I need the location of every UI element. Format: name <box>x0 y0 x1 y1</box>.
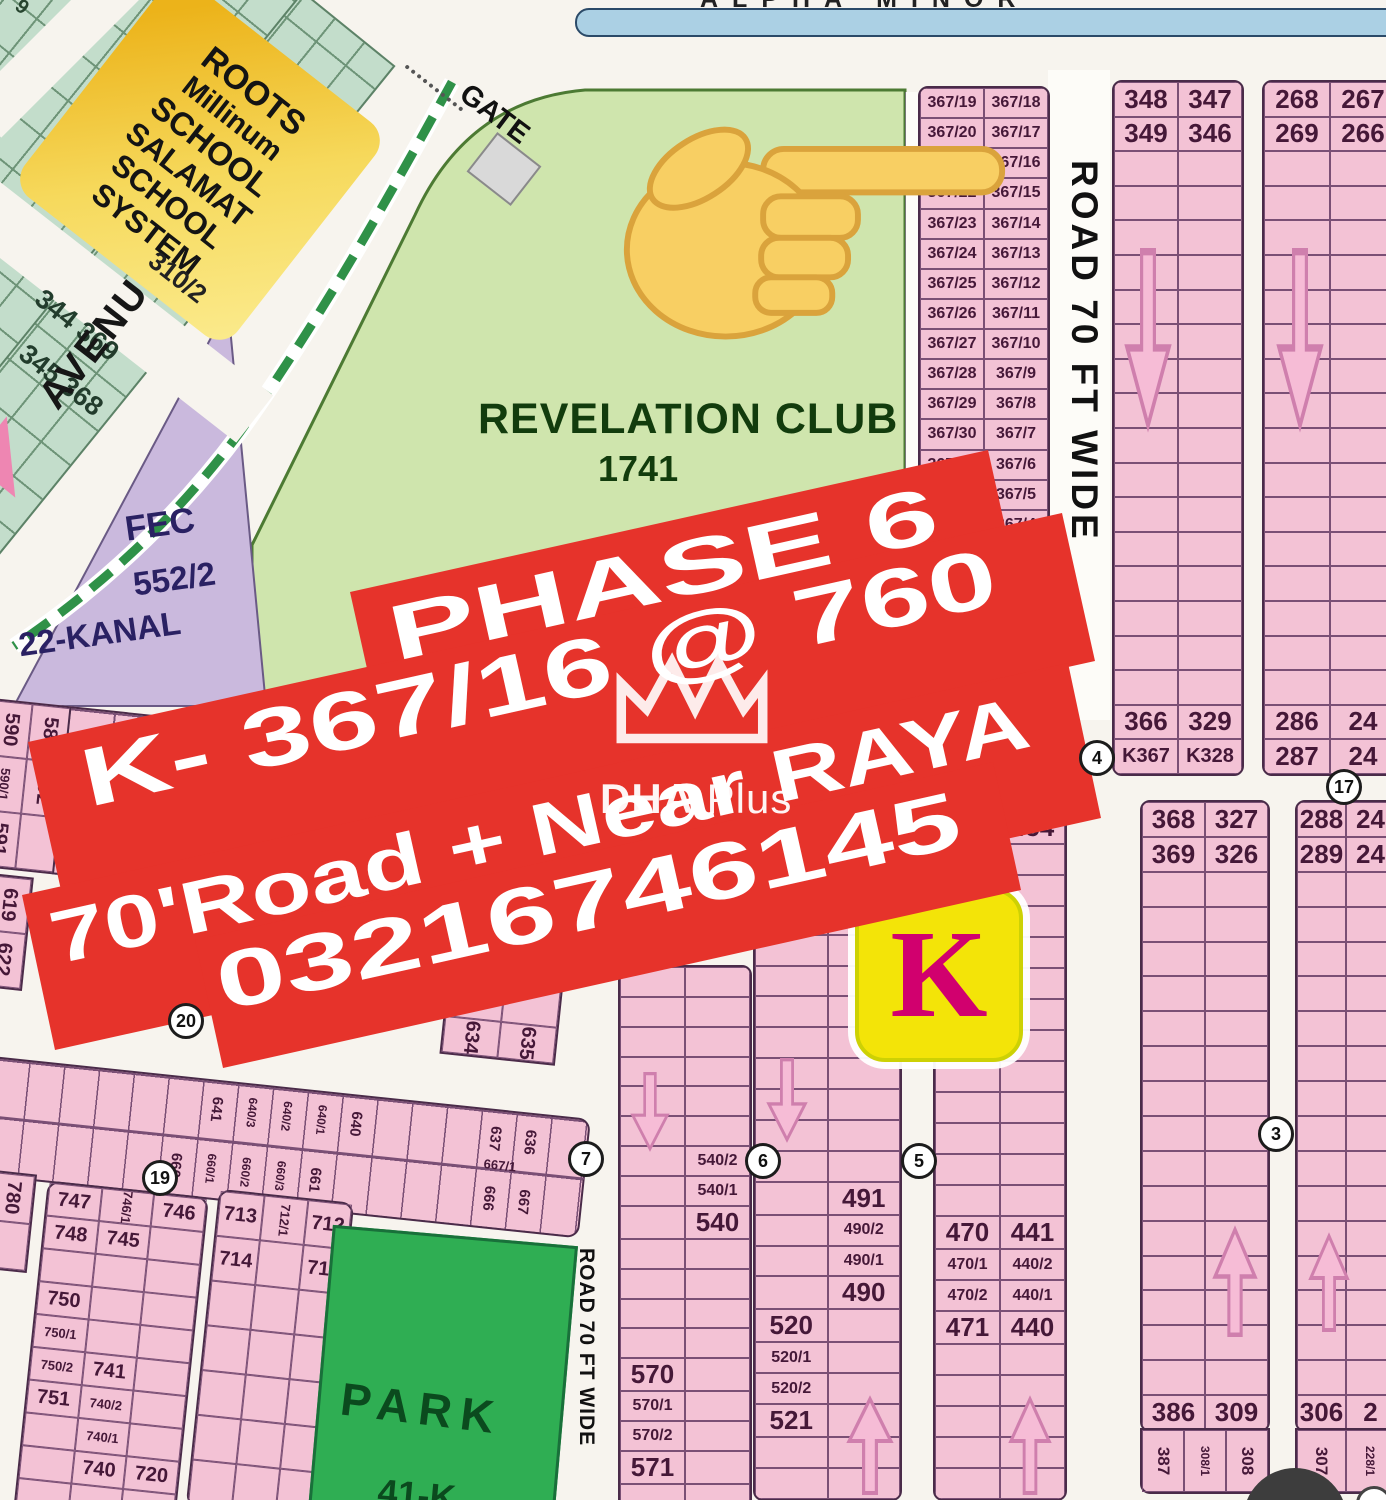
plot-cell: 369 <box>1142 837 1205 872</box>
plot-label: 570 <box>631 1359 674 1390</box>
plot-label: 367/8 <box>996 395 1036 413</box>
plot-cell: 306 <box>1297 1395 1346 1430</box>
plot-cell: 327 <box>1205 802 1268 837</box>
plot-cell <box>1346 1360 1386 1395</box>
plot-label: 740/2 <box>89 1395 123 1413</box>
plot-cell <box>1346 976 1386 1011</box>
plot-cell: 520/2 <box>755 1373 828 1404</box>
plot-cell: 2 <box>1346 1395 1386 1430</box>
plot-label: 309 <box>1215 1397 1258 1428</box>
plot-cell: 309 <box>1205 1395 1268 1430</box>
plot-label: 619 <box>0 887 22 923</box>
plot-label: 591 <box>0 821 12 857</box>
plot-label: 327 <box>1215 804 1258 835</box>
plot-cell <box>1330 393 1386 428</box>
plot-cell: 367/33 <box>920 510 984 540</box>
plot-cell <box>1297 907 1346 942</box>
plot-label: 367/6 <box>996 456 1036 474</box>
plot-cell: 454 <box>1000 811 1065 844</box>
plot-label: 266 <box>1341 118 1384 149</box>
plot-cell <box>755 1215 828 1246</box>
plot-cell <box>1330 324 1386 359</box>
plot-label: 367/3 <box>996 546 1036 564</box>
plot-cell <box>1114 463 1178 498</box>
plot-label: 367/32 <box>928 486 977 504</box>
plot-cell <box>1000 1344 1065 1375</box>
plot-cell <box>828 1342 901 1373</box>
plot-cell <box>127 1423 183 1461</box>
plot-cell <box>620 1299 685 1329</box>
plot-label: 2 <box>1363 1397 1377 1428</box>
plot-cell <box>255 1240 303 1289</box>
plot-cell: 490/2 <box>828 1215 901 1246</box>
plot-cell: 347 <box>1178 82 1242 117</box>
plot-cell <box>1142 1151 1205 1186</box>
plot-cell <box>935 1468 1000 1499</box>
plot-cell: K367 <box>1114 739 1178 774</box>
plot-cell <box>984 570 1048 600</box>
plot-label: 457 <box>946 812 989 843</box>
plot-cell <box>1330 670 1386 705</box>
plot-cell: 455 <box>1000 778 1065 811</box>
plot-label: 540 <box>696 1207 739 1238</box>
plot-block-288: 28824289243062 <box>1295 800 1386 1432</box>
watermark-brand-suffix: .Plus <box>694 775 792 822</box>
plot-cell: 740/2 <box>78 1385 134 1423</box>
plot-cell <box>1264 566 1330 601</box>
plot-cell <box>1264 151 1330 186</box>
plot-cell: 367/5 <box>984 480 1048 510</box>
plot-block-456-470: 456455457454470441470/1440/2470/2440/147… <box>933 745 1067 1500</box>
plot-cell <box>1297 1046 1346 1081</box>
plot-cell <box>685 967 750 997</box>
plot-cell <box>1178 532 1242 567</box>
plot-label: 520 <box>770 1310 813 1341</box>
plot-cell: 349 <box>1114 117 1178 152</box>
plot-cell <box>828 1120 901 1151</box>
plot-cell <box>1330 290 1386 325</box>
plot-label: 640/1 <box>313 1104 330 1135</box>
plot-label: 367/33 <box>928 516 977 534</box>
circle-marker-20: 20 <box>168 1003 204 1039</box>
plot-label: 349 <box>1124 118 1167 149</box>
plot-cell: 289 <box>1297 837 1346 872</box>
plot-cell <box>685 1358 750 1391</box>
circle-marker-17: 17 <box>1326 769 1362 805</box>
plot-cell <box>1264 670 1330 705</box>
plot-cell: 746/1 <box>99 1188 155 1226</box>
plot-cell: 570/1 <box>620 1391 685 1421</box>
plot-label: 24 <box>1349 706 1378 737</box>
plot-cell: 268 <box>1264 82 1330 117</box>
plot-label: 746/1 <box>117 1190 135 1224</box>
plot-label: 367/34 <box>928 546 977 564</box>
plot-cell: 750/2 <box>29 1347 85 1385</box>
plot-cell <box>1000 1061 1065 1092</box>
plot-label: 637 <box>486 1125 506 1152</box>
plot-cell <box>1297 1360 1346 1395</box>
plot-cell <box>1000 747 1065 778</box>
plot-cell: 470 <box>935 1216 1000 1249</box>
plot-cell <box>1297 976 1346 1011</box>
plot-label: 440/1 <box>1012 1287 1052 1305</box>
plot-label: 470 <box>946 1217 989 1248</box>
plot-cell <box>1297 942 1346 977</box>
plot-cell <box>1205 872 1268 907</box>
plot-cell <box>445 980 504 1022</box>
plot-cell <box>1346 872 1386 907</box>
plot-cell <box>1330 220 1386 255</box>
plot-cell <box>1142 907 1205 942</box>
plot-cell <box>1330 532 1386 567</box>
plot-cell <box>1114 532 1178 567</box>
plot-cell <box>1114 636 1178 671</box>
pointing-finger-icon <box>615 100 1010 345</box>
plot-label: 590/1 <box>0 767 14 801</box>
plot-label: 367/30 <box>928 425 977 443</box>
plot-cell <box>1205 1081 1268 1116</box>
plot-cell: 750 <box>36 1281 92 1319</box>
plot-cell <box>1142 1081 1205 1116</box>
plot-label: 287 <box>1275 741 1318 772</box>
plot-cell <box>1178 324 1242 359</box>
plot-cell <box>1178 220 1242 255</box>
plot-cell <box>685 1299 750 1329</box>
plot-cell <box>1114 497 1178 532</box>
plot-label: K328 <box>1186 745 1234 768</box>
plot-block-747-740: 747746/1746748745750750/1750/2741751740/… <box>13 1180 209 1500</box>
plot-label: 228/1 <box>1364 1446 1378 1476</box>
k-sector-logo: K <box>855 888 1023 1062</box>
park-label: PARK <box>338 1372 506 1445</box>
plot-cell: 490/1 <box>828 1246 901 1277</box>
plot-cell <box>92 1254 148 1292</box>
plot-cell <box>1114 428 1178 463</box>
circle-marker-4: 4 <box>1079 740 1115 776</box>
plot-cell: 780 <box>0 1172 35 1223</box>
plot-cell <box>241 1375 289 1424</box>
plot-cell <box>685 1057 750 1087</box>
down-arrow-icon <box>766 1058 808 1143</box>
plot-cell <box>1000 1123 1065 1154</box>
plot-cell <box>1114 566 1178 601</box>
plot-label: 634 <box>458 1019 484 1055</box>
plot-cell <box>1330 601 1386 636</box>
plot-cell <box>685 1116 750 1146</box>
plot-cell: 346 <box>1178 117 1242 152</box>
plot-label: 367/29 <box>928 395 977 413</box>
plot-cell: 267 <box>1330 82 1386 117</box>
plot-cell: 367/7 <box>984 419 1048 449</box>
plot-label: 540/1 <box>697 1182 737 1200</box>
plot-label: 712/1 <box>275 1203 293 1237</box>
plot-cell <box>1264 463 1330 498</box>
plot-label: 348 <box>1124 84 1167 115</box>
up-arrow-icon <box>846 1395 894 1495</box>
plot-label: 636 <box>521 1128 541 1155</box>
plot-cell <box>1142 1186 1205 1221</box>
plot-cell <box>620 1176 685 1206</box>
plot-cell <box>828 1089 901 1120</box>
plot-cell <box>1178 393 1242 428</box>
plot-cell <box>1346 1081 1386 1116</box>
plot-label: 286 <box>1275 706 1318 737</box>
plot-cell: 622 <box>0 930 26 989</box>
plot-cell <box>935 1123 1000 1154</box>
plot-cell: 367/3 <box>984 540 1048 570</box>
circle-marker-5: 5 <box>901 1143 937 1179</box>
plot-label: 440/2 <box>1012 1256 1052 1274</box>
plot-cell: 456 <box>935 778 1000 811</box>
plot-cell: 24 <box>1346 802 1386 837</box>
plot-cell <box>1330 186 1386 221</box>
plot-cell: 540 <box>685 1206 750 1239</box>
plot-label: 540/2 <box>697 1152 737 1170</box>
plot-cell <box>1178 255 1242 290</box>
plot-label: 570/2 <box>632 1427 672 1445</box>
plot-cell <box>1346 1221 1386 1256</box>
plot-cell: 367/29 <box>920 389 984 419</box>
plot-label: 592 <box>30 771 56 807</box>
plot-label: 661 <box>305 1166 325 1193</box>
plot-cell: 287 <box>1264 739 1330 774</box>
plot-cell <box>1205 1046 1268 1081</box>
plot-cell <box>685 1484 750 1500</box>
park-area: PARK 41-K <box>308 1225 578 1500</box>
road-70-ft-wide-bottom-label: ROAD 70 FT WIDE <box>574 1248 598 1446</box>
club-number: 1741 <box>598 448 678 490</box>
plot-cell <box>1178 359 1242 394</box>
plot-cell: 386 <box>1142 1395 1205 1430</box>
plot-cell: 540/1 <box>685 1176 750 1206</box>
plot-label: 660/3 <box>272 1160 289 1191</box>
plot-cell <box>1205 976 1268 1011</box>
plot-cell <box>685 1451 750 1484</box>
plot-cell <box>1264 532 1330 567</box>
plot-label: 714 <box>218 1247 254 1273</box>
plot-label: 24 <box>1349 741 1378 772</box>
plot-block-368-327-bottom: 387 308/1 308 <box>1140 1428 1270 1494</box>
plot-label: 490/1 <box>844 1252 884 1270</box>
plot-cell <box>144 1259 200 1297</box>
plot-cell <box>620 997 685 1027</box>
up-arrow-icon <box>1008 1395 1052 1495</box>
plot-block-589-592: 590589590/1592591 <box>0 698 294 894</box>
plot-cell: 457 <box>935 811 1000 844</box>
plot-label: 640/3 <box>243 1097 260 1128</box>
plot-label: 471 <box>946 1312 989 1343</box>
plot-cell: 540/2 <box>685 1146 750 1176</box>
plot-cell <box>935 1406 1000 1437</box>
plot-cell <box>1205 1360 1268 1395</box>
plot-label: 750 <box>46 1287 82 1313</box>
plot-label: 740/1 <box>85 1428 119 1446</box>
plot-cell: 740 <box>71 1451 127 1489</box>
plot-cell <box>1346 1116 1386 1151</box>
plot-cell <box>935 1185 1000 1216</box>
plot-cell <box>620 1206 685 1239</box>
plot-cell <box>1297 1081 1346 1116</box>
club-name: REVELATION CLUB <box>478 395 898 444</box>
plot-cell: 713 <box>216 1191 264 1240</box>
plot-cell <box>755 1027 828 1058</box>
plot-cell <box>1178 290 1242 325</box>
plot-cell <box>1330 359 1386 394</box>
plot-label: 660/2 <box>237 1157 254 1188</box>
plot-cell <box>1297 872 1346 907</box>
plot-cell <box>1346 942 1386 977</box>
plot-cell <box>1142 1046 1205 1081</box>
plot-label: 267 <box>1341 84 1384 115</box>
plot-cell: 367/34 <box>920 540 984 570</box>
plot-cell: 441 <box>1000 1216 1065 1249</box>
plot-cell: 745 <box>95 1221 151 1259</box>
plot-cell <box>755 996 828 1027</box>
plot-cell <box>1330 428 1386 463</box>
plot-cell <box>505 950 564 992</box>
plot-cell <box>19 1445 75 1483</box>
plot-label: 660/1 <box>202 1153 219 1184</box>
plot-cell <box>1142 1221 1205 1256</box>
plot-cell: K328 <box>1178 739 1242 774</box>
plot-cell: 329 <box>1178 705 1242 740</box>
plot-cell <box>620 1269 685 1299</box>
plot-cell <box>1330 255 1386 290</box>
plot-label: 570/1 <box>632 1397 672 1415</box>
plot-label: 713 <box>223 1202 259 1228</box>
plot-cell <box>1297 1011 1346 1046</box>
plot-cell <box>232 1464 280 1500</box>
k-sector-letter: K <box>890 904 987 1047</box>
plot-label: 622 <box>0 942 16 978</box>
plot-label: 589 <box>36 716 62 752</box>
plot-label: 640/2 <box>278 1101 295 1132</box>
plot-label: 308/1 <box>1198 1446 1212 1476</box>
plot-cell <box>1142 1360 1205 1395</box>
plot-label: 590 <box>0 712 23 748</box>
plot-cell <box>1330 636 1386 671</box>
plot-label: 387 <box>1153 1447 1173 1475</box>
plot-cell <box>828 1309 901 1342</box>
plot-cell <box>1205 1151 1268 1186</box>
plot-label: 386 <box>1152 1397 1195 1428</box>
watermark-text: DHA.Plus <box>600 775 792 823</box>
plot-cell: 266 <box>1330 117 1386 152</box>
plot-cell <box>1346 907 1386 942</box>
plot-label: 470/1 <box>947 1256 987 1274</box>
plot-cell <box>1178 151 1242 186</box>
plot-cell <box>935 1092 1000 1123</box>
plot-cell: 367/9 <box>984 359 1048 389</box>
circle-marker-7: 7 <box>568 1141 604 1177</box>
plot-cell <box>1178 670 1242 705</box>
plot-cell <box>1142 872 1205 907</box>
plot-cell <box>1346 1325 1386 1360</box>
watermark-brand: DHA <box>600 775 694 822</box>
plot-cell <box>88 1287 144 1325</box>
plot-cell: 470/2 <box>935 1280 1000 1311</box>
plot-cell: 490 <box>828 1276 901 1309</box>
plot-label: 750/1 <box>43 1324 77 1342</box>
plot-label: K367 <box>1122 745 1170 768</box>
plot-label: 329 <box>1188 706 1231 737</box>
plot-cell <box>1178 566 1242 601</box>
plot-cell: 746 <box>151 1194 207 1232</box>
plot-cell <box>685 997 750 1027</box>
plot-cell <box>1142 1011 1205 1046</box>
plot-cell <box>685 1086 750 1116</box>
plot-cell <box>1346 1256 1386 1291</box>
road-70-ft-wide-right-label: ROAD 70 FT WIDE <box>1063 160 1105 543</box>
down-arrow-icon <box>1276 248 1324 433</box>
plot-cell <box>1142 942 1205 977</box>
plot-cell <box>1330 463 1386 498</box>
plot-label: 521 <box>770 1405 813 1436</box>
plot-cell <box>828 1151 901 1182</box>
plot-cell: 286 <box>1264 705 1330 740</box>
plot-cell: 520/1 <box>755 1342 828 1373</box>
plot-cell <box>1178 636 1242 671</box>
plot-cell <box>188 1459 236 1500</box>
plot-cell: 748 <box>43 1215 99 1253</box>
plot-cell: 440/1 <box>1000 1280 1065 1311</box>
plot-cell: 571 <box>620 1451 685 1484</box>
plot-label: 751 <box>36 1386 72 1412</box>
plot-cell: 367/32 <box>920 480 984 510</box>
plot-label: 491 <box>842 1183 885 1214</box>
plot-cell <box>1346 1046 1386 1081</box>
plot-cell: 269 <box>1264 117 1330 152</box>
plot-cell <box>1205 907 1268 942</box>
plot-cell <box>1346 1186 1386 1221</box>
plot-cell <box>1264 186 1330 221</box>
plot-cell <box>1346 1290 1386 1325</box>
plot-cell <box>1178 186 1242 221</box>
plot-label: 750/2 <box>40 1357 74 1375</box>
plot-cell: 750/1 <box>32 1314 88 1352</box>
plot-cell <box>1114 186 1178 221</box>
plot-cell: 491 <box>828 1182 901 1215</box>
plot-cell <box>1205 1186 1268 1221</box>
plot-cell <box>935 1375 1000 1406</box>
plot-label: 470/2 <box>947 1287 987 1305</box>
plot-label: 367/4 <box>996 516 1036 534</box>
plot-label: 24 <box>1356 839 1385 870</box>
plot-cell <box>1330 497 1386 532</box>
plot-label: 366 <box>1124 706 1167 737</box>
plot-cell <box>620 1328 685 1358</box>
plot-label: 24 <box>1356 804 1385 835</box>
plot-cell: 367/30 <box>920 419 984 449</box>
plot-cell <box>1114 670 1178 705</box>
plot-cell <box>130 1391 186 1429</box>
plot-cell <box>1330 151 1386 186</box>
plot-label: 520/2 <box>771 1380 811 1398</box>
plot-cell <box>1264 428 1330 463</box>
plot-cell: 326 <box>1205 837 1268 872</box>
plot-label: 571 <box>631 1452 674 1483</box>
plot-cell <box>755 966 828 997</box>
plot-cell: 367/4 <box>984 510 1048 540</box>
plot-cell <box>1297 1151 1346 1186</box>
plot-cell <box>1000 844 1065 875</box>
plot-cell: 714 <box>211 1236 259 1285</box>
plot-cell <box>685 1328 750 1358</box>
plot-cell <box>755 1246 828 1277</box>
plot-cell: 24 <box>1346 837 1386 872</box>
plot-label: 667 <box>514 1188 534 1215</box>
plot-cell: 747 <box>46 1183 102 1221</box>
